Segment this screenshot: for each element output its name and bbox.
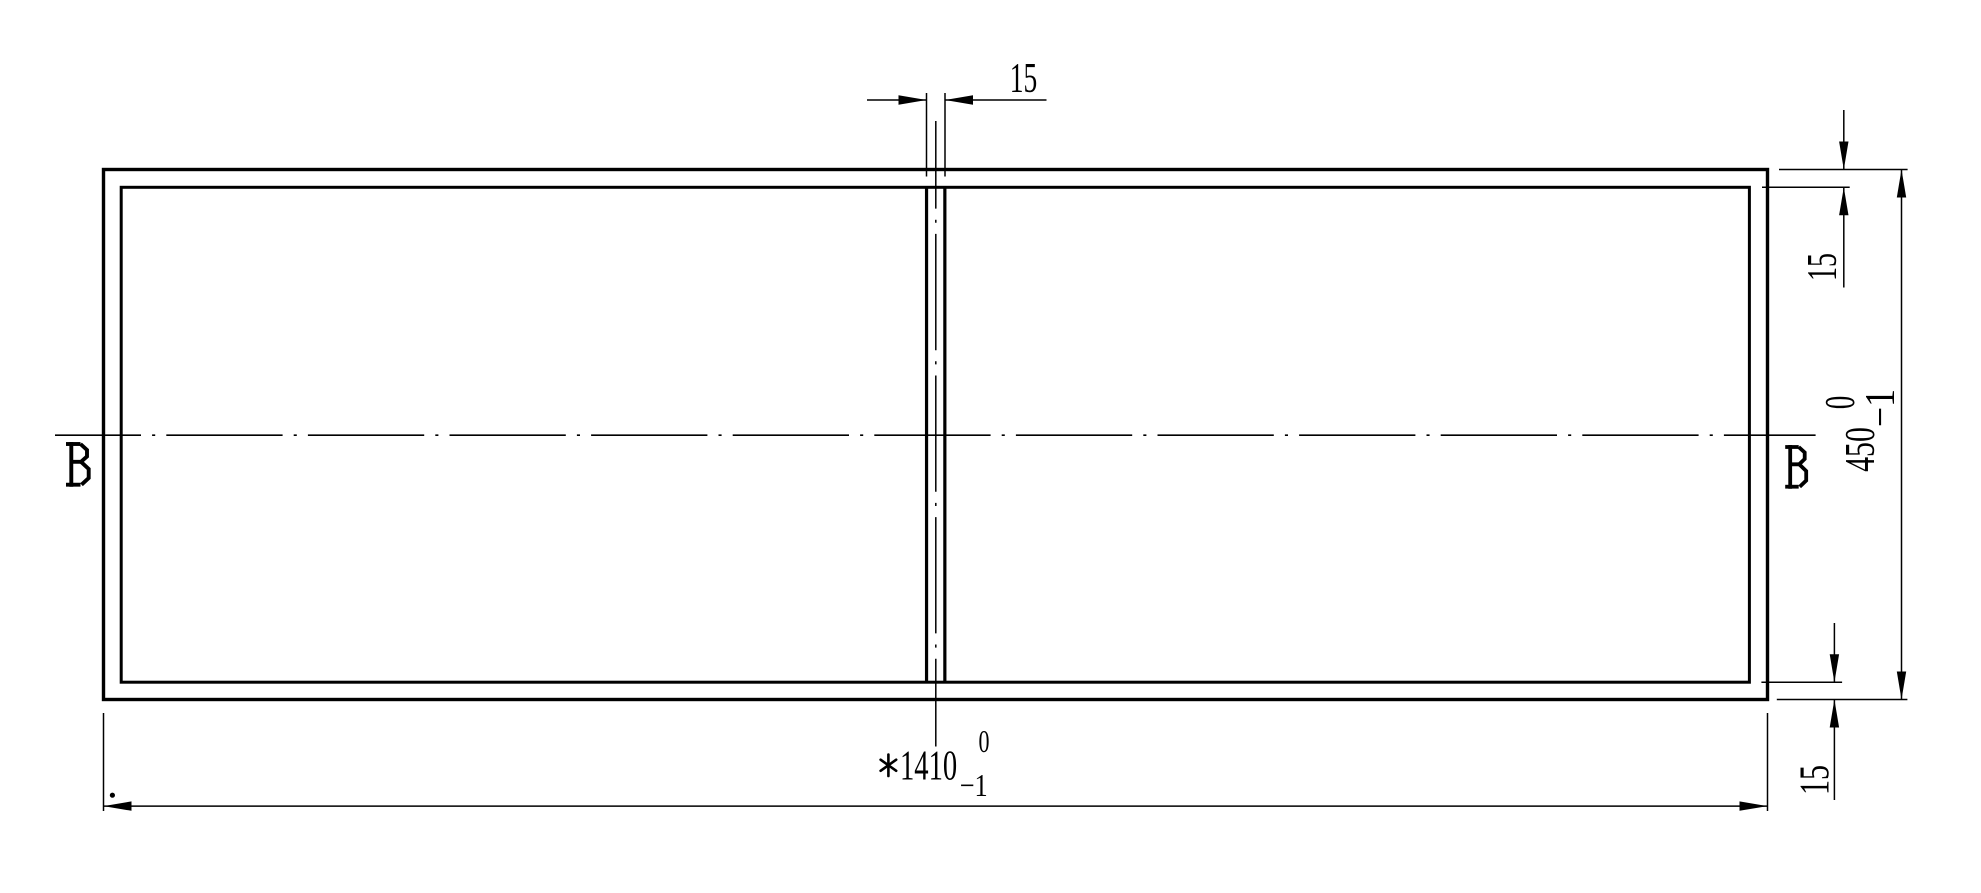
svg-text:1410: 1410 xyxy=(900,743,957,789)
svg-text:15: 15 xyxy=(1010,56,1038,102)
svg-text:450: 450 xyxy=(1838,427,1884,472)
svg-text:15: 15 xyxy=(1792,765,1838,795)
svg-text:−1: −1 xyxy=(960,767,988,803)
svg-text:15: 15 xyxy=(1800,253,1846,281)
svg-text:−1: −1 xyxy=(1858,389,1904,427)
svg-text:0: 0 xyxy=(979,723,990,759)
